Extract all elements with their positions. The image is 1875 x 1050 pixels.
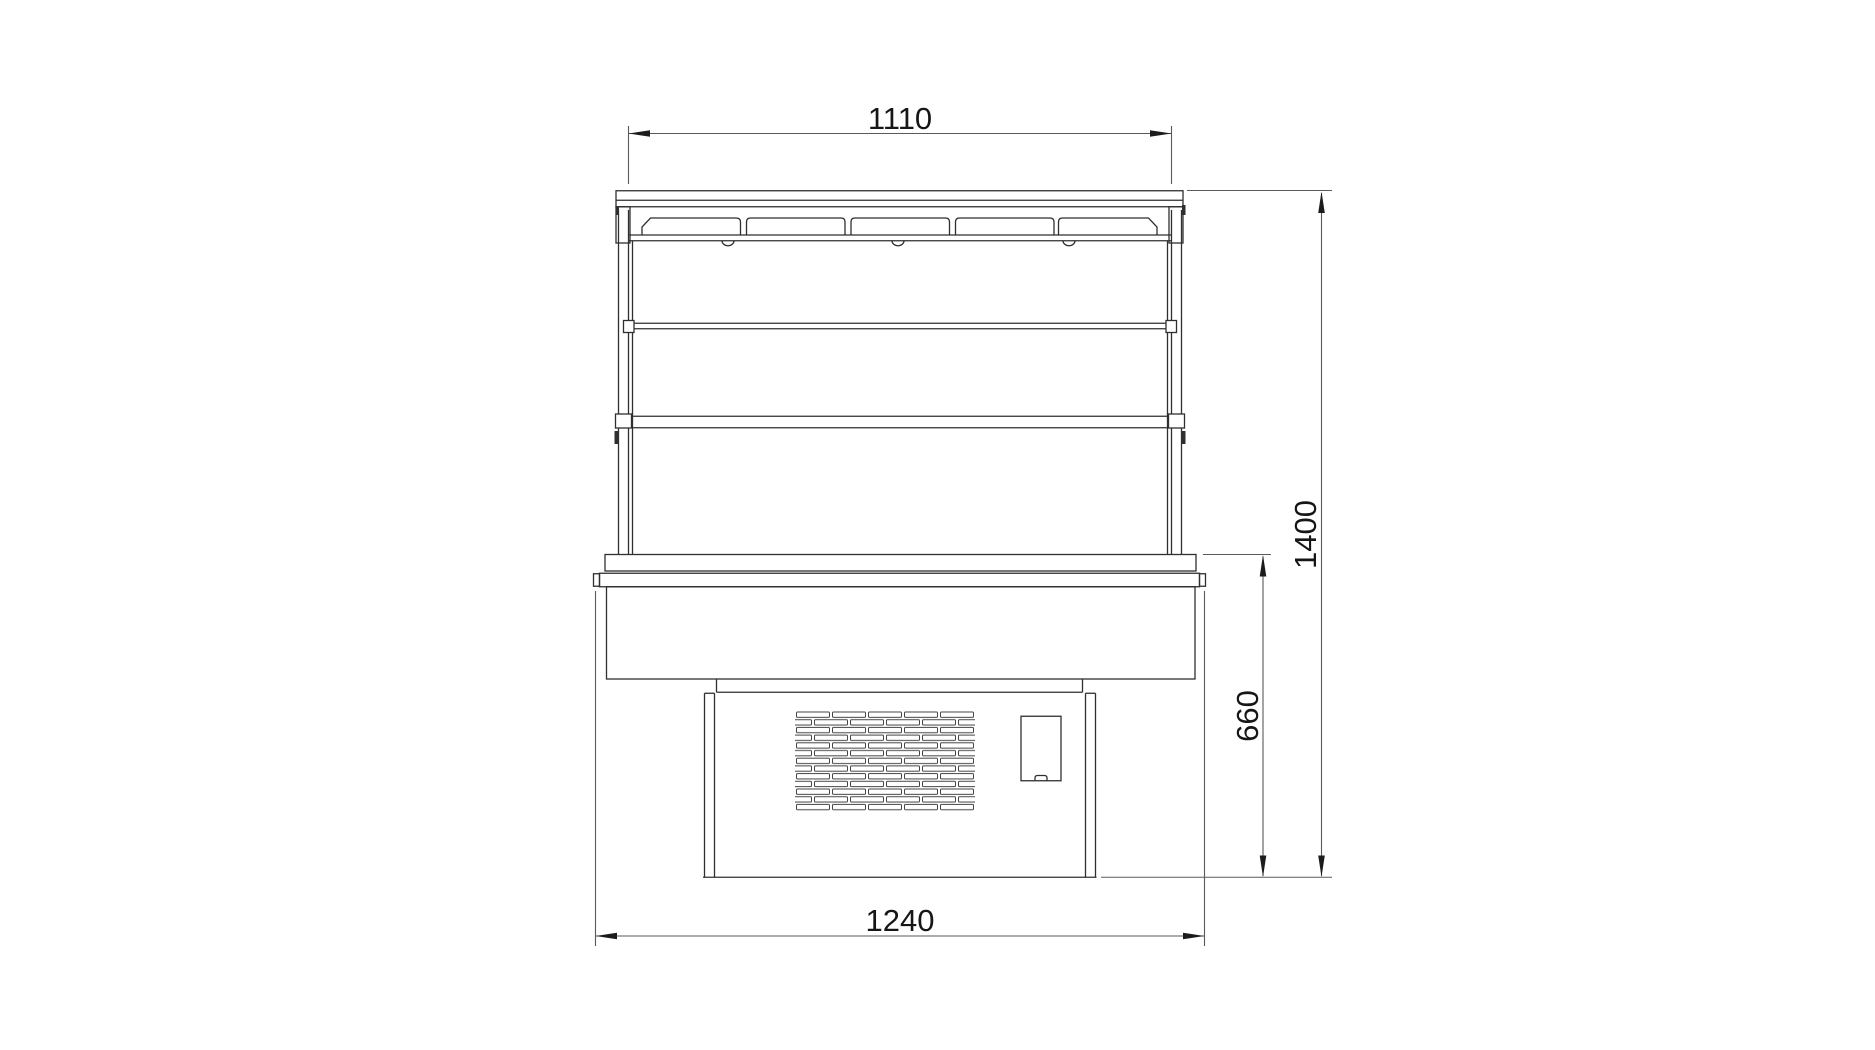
panel-insert-3 — [851, 218, 950, 235]
counter-top — [605, 555, 1196, 572]
back-panel-edges — [633, 241, 1168, 555]
bumper-tab-right — [1200, 574, 1206, 587]
dimension-label-overall-height: 1400 — [1288, 500, 1323, 569]
access-panel-latch — [1035, 776, 1047, 781]
canopy-panel-row — [629, 218, 1172, 246]
ventilation-grille — [795, 711, 975, 811]
grille-louvers — [795, 711, 975, 811]
dimension-label-lower-height: 660 — [1230, 690, 1265, 742]
panel-insert-2 — [747, 218, 846, 235]
canopy-slab — [616, 191, 1183, 207]
display-case — [594, 191, 1206, 878]
access-panel — [1021, 716, 1061, 781]
arrowhead-top — [1260, 555, 1267, 577]
panel-insert-1 — [642, 218, 741, 235]
joint-pin-right — [1182, 431, 1186, 444]
canopy-fastener-right — [1182, 205, 1186, 215]
glass-shelf — [624, 321, 1177, 333]
shelf-bracket-right — [1166, 321, 1177, 333]
arrowhead-left — [596, 933, 618, 940]
cabinet-body — [607, 587, 1196, 679]
joint-bracket-right — [1169, 414, 1185, 428]
cabinet-body-panel — [607, 587, 1196, 679]
dimension-overall-height: 1400 — [1101, 191, 1332, 878]
counter-bumper — [594, 573, 1206, 587]
shelf-bracket-left — [624, 321, 635, 333]
drawing-canvas: 1110 1400 660 1240 — [0, 0, 1875, 1050]
dimension-top-width: 1110 — [629, 101, 1172, 184]
access-panel-frame — [1021, 716, 1061, 781]
dimensions: 1110 1400 660 1240 — [596, 101, 1333, 946]
panel-insert-5 — [1059, 218, 1158, 235]
arrowhead-bottom — [1260, 856, 1267, 878]
joint-pin-left — [615, 431, 619, 444]
display-case-front-elevation: 1110 1400 660 1240 — [0, 0, 1875, 1050]
rail-notch-1 — [722, 241, 734, 246]
frame-joint — [615, 414, 1186, 444]
dimension-label-base-width: 1240 — [866, 903, 935, 938]
bumper-band — [600, 573, 1200, 587]
rail-notch-3 — [1063, 241, 1075, 246]
dimension-label-top-width: 1110 — [868, 101, 932, 136]
arrowhead-bottom — [1318, 856, 1325, 878]
arrowhead-right — [1183, 933, 1205, 940]
arrowhead-left — [629, 130, 651, 137]
upright-post-left — [619, 210, 629, 555]
counter-top-board — [605, 555, 1196, 572]
panel-insert-4 — [956, 218, 1055, 235]
arrowhead-top — [1318, 192, 1325, 214]
dimension-lower-height: 660 — [1203, 555, 1271, 878]
bumper-tab-left — [594, 574, 600, 587]
arrowhead-right — [1150, 130, 1172, 137]
rail-notch-2 — [892, 241, 904, 246]
upright-post-right — [1172, 210, 1182, 555]
joint-bracket-left — [616, 414, 632, 428]
